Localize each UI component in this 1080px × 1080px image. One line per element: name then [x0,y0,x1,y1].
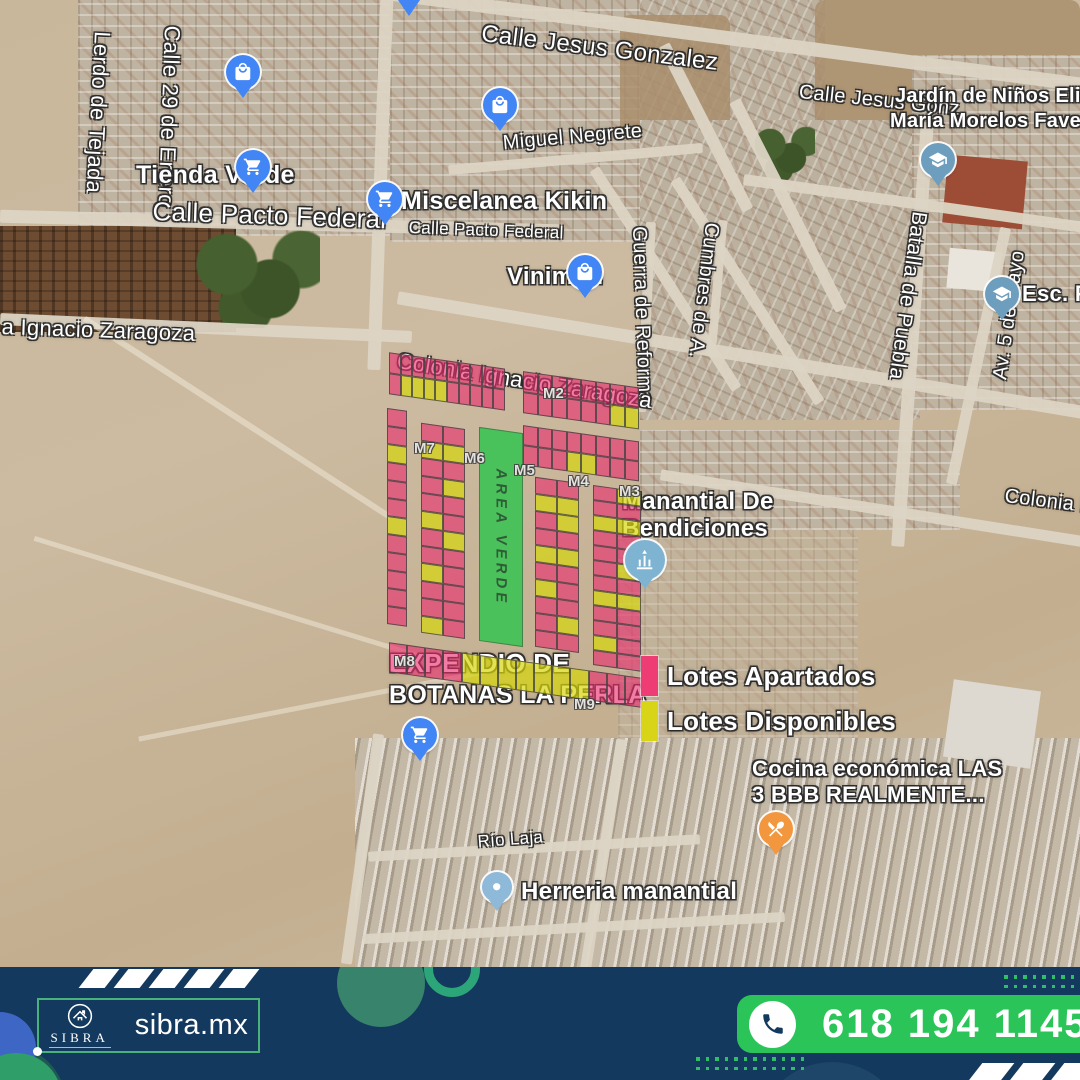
decor-teal-blob [337,967,425,1027]
dot-decor [772,1057,776,1061]
footer-bar: SIBRA sibra.mx 618 194 1145 [0,967,1080,1080]
school-icon [985,277,1019,311]
cart-icon [403,718,437,752]
lot-apartado [435,359,447,382]
lot-apartado [567,377,582,400]
dot-decor [725,1057,729,1061]
lot-apartado [607,673,625,706]
map-pin [921,143,955,186]
lot-apartado [581,379,596,402]
map-label: Jardín de Niños Elia [895,86,1080,106]
lot-disponible [534,663,552,696]
dot-pin-head [482,872,512,902]
stripe-decor [184,969,225,988]
decor-stripes-top-left [86,969,252,988]
dot-decor [1004,985,1008,989]
lot-apartado [389,352,401,375]
cart-pin-head [403,718,437,752]
lot-apartado [523,371,538,394]
phone-number: 618 194 1145 [822,1002,1080,1047]
block-label: M2 [543,386,564,401]
lot-apartado [424,357,436,380]
school-pin-head [921,143,955,177]
brand-name: SIBRA [51,1030,109,1046]
lot-apartado [625,385,640,408]
lot-apartado [425,647,443,680]
lot-apartado [412,356,424,379]
lot-apartado [596,435,611,457]
cart-pin-head [368,182,402,216]
lot-apartado [625,459,640,481]
stripe-decor [964,1063,1015,1080]
shopping-bag-pin-head [226,55,260,89]
legend-disponibles-label: Lotes Disponibles [667,708,896,734]
lot-apartado [596,455,611,477]
satellite-map: Calle Jesus GonzalezCalle Jesus GonzJard… [0,0,1080,967]
legend-apartados-label: Lotes Apartados [667,663,876,689]
dot-decor [715,1067,719,1071]
dot-decor [725,1067,729,1071]
dot-decor [1033,985,1037,989]
lot-disponible [462,652,480,685]
lot-apartado [552,429,567,451]
decor-stripes-bottom-right [973,1063,1080,1080]
lot-apartado [593,650,617,668]
school-icon [921,143,955,177]
decor-ring [424,967,480,997]
lot-disponible [412,377,424,400]
dot-decor [1061,985,1065,989]
dot-decor [734,1067,738,1071]
shopping-bag-pin-head [568,255,602,289]
decor-dots-top-right [1004,975,1080,988]
lot-disponible [424,378,436,401]
dot-decor [753,1057,757,1061]
dot-decor [1061,975,1065,979]
real-estate-flyer: Calle Jesus GonzalezCalle Jesus GonzJard… [0,0,1080,1080]
lot-apartado [470,364,482,387]
dot-decor [1042,985,1046,989]
lot-apartado [625,439,640,461]
dot-decor [706,1057,710,1061]
shopping-bag-pin-head [483,88,517,122]
lot-apartado [387,606,407,627]
map-label: Tienda Verde [136,163,295,188]
lot-apartado [459,383,471,406]
shopping-bag-icon [568,255,602,289]
restaurant-pin-head [759,812,793,846]
map-label: Esc. Pri [1022,283,1080,305]
map-pin [985,277,1019,320]
lot-apartado [470,385,482,408]
lot-disponible [401,375,413,398]
lot-disponible [516,660,534,693]
monument-icon [625,540,665,580]
lot-apartado [581,433,596,455]
lot-apartado [610,383,625,406]
dot-decor [734,1057,738,1061]
dot-decor [1042,975,1046,979]
block-label: M8 [394,654,415,669]
map-pin [236,150,270,193]
shopping-bag-icon [483,88,517,122]
lot-apartado [610,437,625,459]
lot-apartado [389,373,401,396]
map-pin [568,255,602,298]
dot-decor [782,1067,786,1071]
dot-decor [696,1057,700,1061]
lot-apartado [523,392,538,415]
dot-decor [706,1067,710,1071]
map-pin [482,872,512,911]
block-label: M4 [568,474,589,489]
house-icon [67,1003,93,1029]
lot-disponible [480,655,498,688]
dot-decor [791,1057,795,1061]
dot-decor [1014,985,1018,989]
dot-icon [482,872,512,902]
block-label: M6 [464,451,485,466]
lot-apartado [567,431,582,453]
lots-legend: Lotes Apartados Lotes Disponibles [641,656,896,741]
lot-apartado [596,402,611,425]
apartados-swatch [641,656,658,696]
map-pin [625,540,665,589]
lot-disponible [567,451,582,473]
lot-apartado [482,386,494,409]
school-pin-head [985,277,1019,311]
dot-decor [1052,985,1056,989]
dot-decor [1014,975,1018,979]
cart-pin-head [236,150,270,184]
map-pin-partial [398,0,420,16]
dot-decor [1023,975,1027,979]
dot-decor [744,1057,748,1061]
map-pin [759,812,793,855]
map-label: 3 BBB REALMENTE... [752,784,985,806]
lot-apartado [567,398,582,421]
lot-apartado [493,367,505,390]
lot-apartado [535,630,557,650]
legend-row-apartados: Lotes Apartados [641,656,896,696]
phone-icon [749,1001,796,1048]
lot-apartado [596,381,611,404]
lot-apartado [482,365,494,388]
phone-button[interactable]: 618 194 1145 [737,995,1080,1053]
lot-block [387,408,407,627]
brand-tagline-line [49,1047,111,1048]
decor-white-dot [33,1047,42,1056]
map-label: Calle Pacto Federal [152,198,387,232]
map-label: María Morelos Favela [890,111,1080,131]
area-verde: AREA VERDE [479,427,523,647]
lot-disponible [435,380,447,403]
lot-disponible [581,453,596,475]
lot-disponible [498,658,516,691]
lot-apartado [493,388,505,411]
disponibles-swatch [641,701,658,741]
map-pin [403,718,437,761]
dot-decor [753,1067,757,1071]
stripe-decor [149,969,190,988]
lot-apartado [443,618,465,639]
dot-decor [801,1057,805,1061]
dot-decor [763,1067,767,1071]
dot-decor [1033,975,1037,979]
lot-apartado [523,425,538,447]
area-verde-label: AREA VERDE [493,467,510,607]
map-pin [483,88,517,131]
dot-decor [715,1057,719,1061]
website-text: sibra.mx [135,1009,249,1042]
block-label: M3 [619,484,640,499]
dot-decor [772,1067,776,1071]
block-label: M5 [514,463,535,478]
map-label: Miscelanea Kikin [401,189,607,214]
restaurant-icon [759,812,793,846]
cart-icon [368,182,402,216]
dot-decor [1071,985,1075,989]
dot-decor [801,1067,805,1071]
lot-apartado [538,427,553,449]
shopping-bag-icon [226,55,260,89]
dot-decor [791,1067,795,1071]
sibra-logo: SIBRA [49,1003,111,1048]
dot-decor [744,1067,748,1071]
lot-apartado [581,400,596,423]
dot-decor [782,1057,786,1061]
lot-apartado [617,653,641,671]
lot-block [535,477,579,653]
legend-row-disponibles: Lotes Disponibles [641,701,896,741]
dot-decor [1023,985,1027,989]
monument-pin-head [625,540,665,580]
cart-icon [236,150,270,184]
map-pin [368,182,402,225]
lot-apartado [401,354,413,377]
dot-decor [1004,975,1008,979]
sibra-link[interactable]: SIBRA sibra.mx [37,998,260,1053]
map-label: Cocina económica LAS [752,758,1003,780]
decor-dots-bottom [696,1057,804,1070]
stripe-decor [114,969,155,988]
lot-apartado [447,381,459,404]
dot-decor [1052,975,1056,979]
stripe-decor [79,969,120,988]
lot-disponible [625,406,640,429]
dot-decor [696,1067,700,1071]
dot-decor [1071,975,1075,979]
map-label: Río Laja [477,828,544,850]
map-pin [226,55,260,98]
lot-apartado [459,362,471,385]
lot-apartado [443,650,461,683]
lot-apartado [552,449,567,471]
block-label: M9 [574,697,595,712]
lot-apartado [557,633,579,653]
block-label: M7 [414,441,435,456]
lot-disponible [610,404,625,427]
lot-apartado [610,457,625,479]
lot-apartado [447,360,459,383]
lot-apartado [538,447,553,469]
lot-disponible [552,665,570,698]
lots-overlay: AREA VERDE [387,352,649,729]
lot-disponible [421,615,443,636]
dot-decor [763,1057,767,1061]
map-label: Herreria manantial [521,880,737,904]
stripe-decor [219,969,260,988]
